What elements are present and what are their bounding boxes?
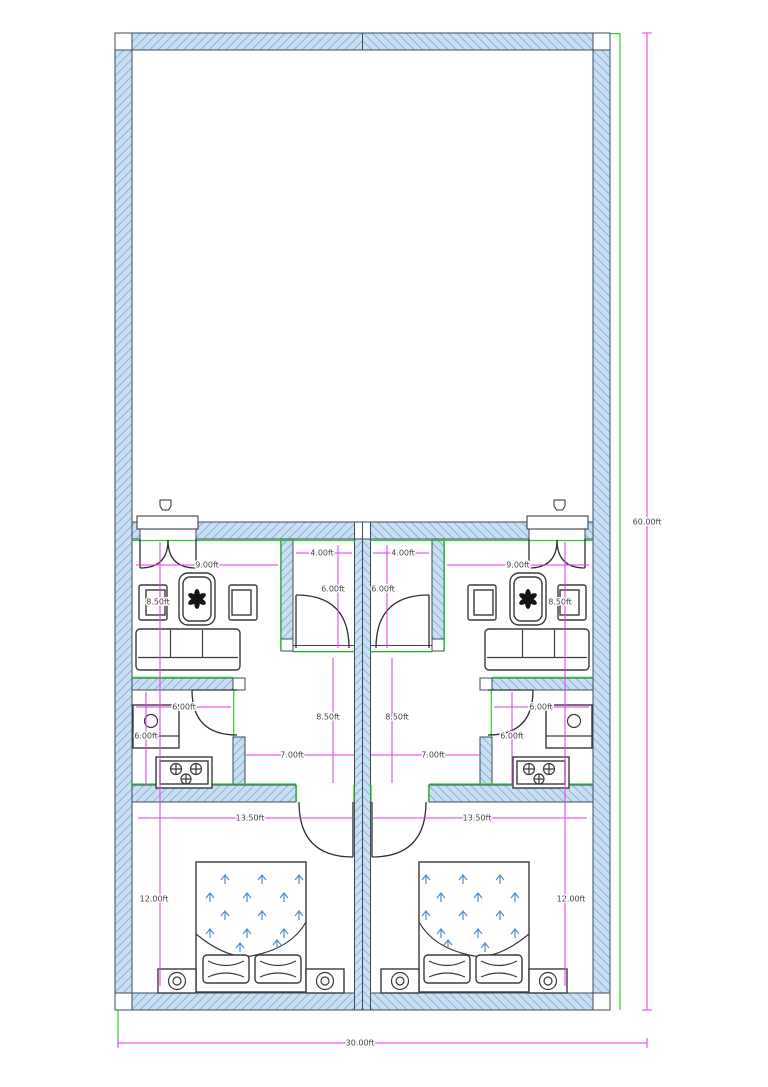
- dim-label-bedroom-width-right: 13.50ft: [463, 814, 492, 823]
- unit-right: [363, 33, 611, 1010]
- dim-label-bedroom-depth-left: 12.00ft: [140, 895, 169, 904]
- dim-label-kitchen-width-left: 6.00ft: [172, 703, 196, 712]
- dim-label-building-width: 30.00ft: [346, 1039, 375, 1048]
- dim-label-living-depth-right: 8.50ft: [548, 598, 572, 607]
- dim-label-hall-depth-left: 8.50ft: [316, 713, 340, 722]
- dim-label-hall-width-left: 7.00ft: [280, 751, 304, 760]
- dim-label-building-depth: 60.00ft: [633, 518, 662, 527]
- dim-label-bedroom-width-left: 13.50ft: [236, 814, 265, 823]
- dim-label-closet-width-right: 4.00ft: [391, 549, 415, 558]
- dim-label-living-width-left: 9.00ft: [195, 561, 219, 570]
- floor-plan-svg: 9.00ft 8.50ft 4.00ft 6.00ft 6.00ft 6.00f…: [0, 0, 768, 1087]
- unit-left: [115, 33, 363, 1010]
- floor-plan-drawing: 9.00ft 8.50ft 4.00ft 6.00ft 6.00ft 6.00f…: [0, 0, 768, 1087]
- dim-label-hall-depth-right: 8.50ft: [385, 713, 409, 722]
- dim-label-closet-depth-right: 6.00ft: [371, 585, 395, 594]
- dim-label-hall-width-right: 7.00ft: [421, 751, 445, 760]
- dim-label-living-width-right: 9.00ft: [506, 561, 530, 570]
- dim-label-kitchen-depth-left: 6.00ft: [134, 732, 158, 741]
- dim-label-kitchen-depth-right: 6.00ft: [500, 732, 524, 741]
- dim-label-bedroom-depth-right: 12.00ft: [557, 895, 586, 904]
- dim-label-living-depth-left: 8.50ft: [146, 598, 170, 607]
- dim-label-kitchen-width-right: 6.00ft: [529, 703, 553, 712]
- dim-label-closet-width-left: 4.00ft: [310, 549, 334, 558]
- dim-label-closet-depth-left: 6.00ft: [321, 585, 345, 594]
